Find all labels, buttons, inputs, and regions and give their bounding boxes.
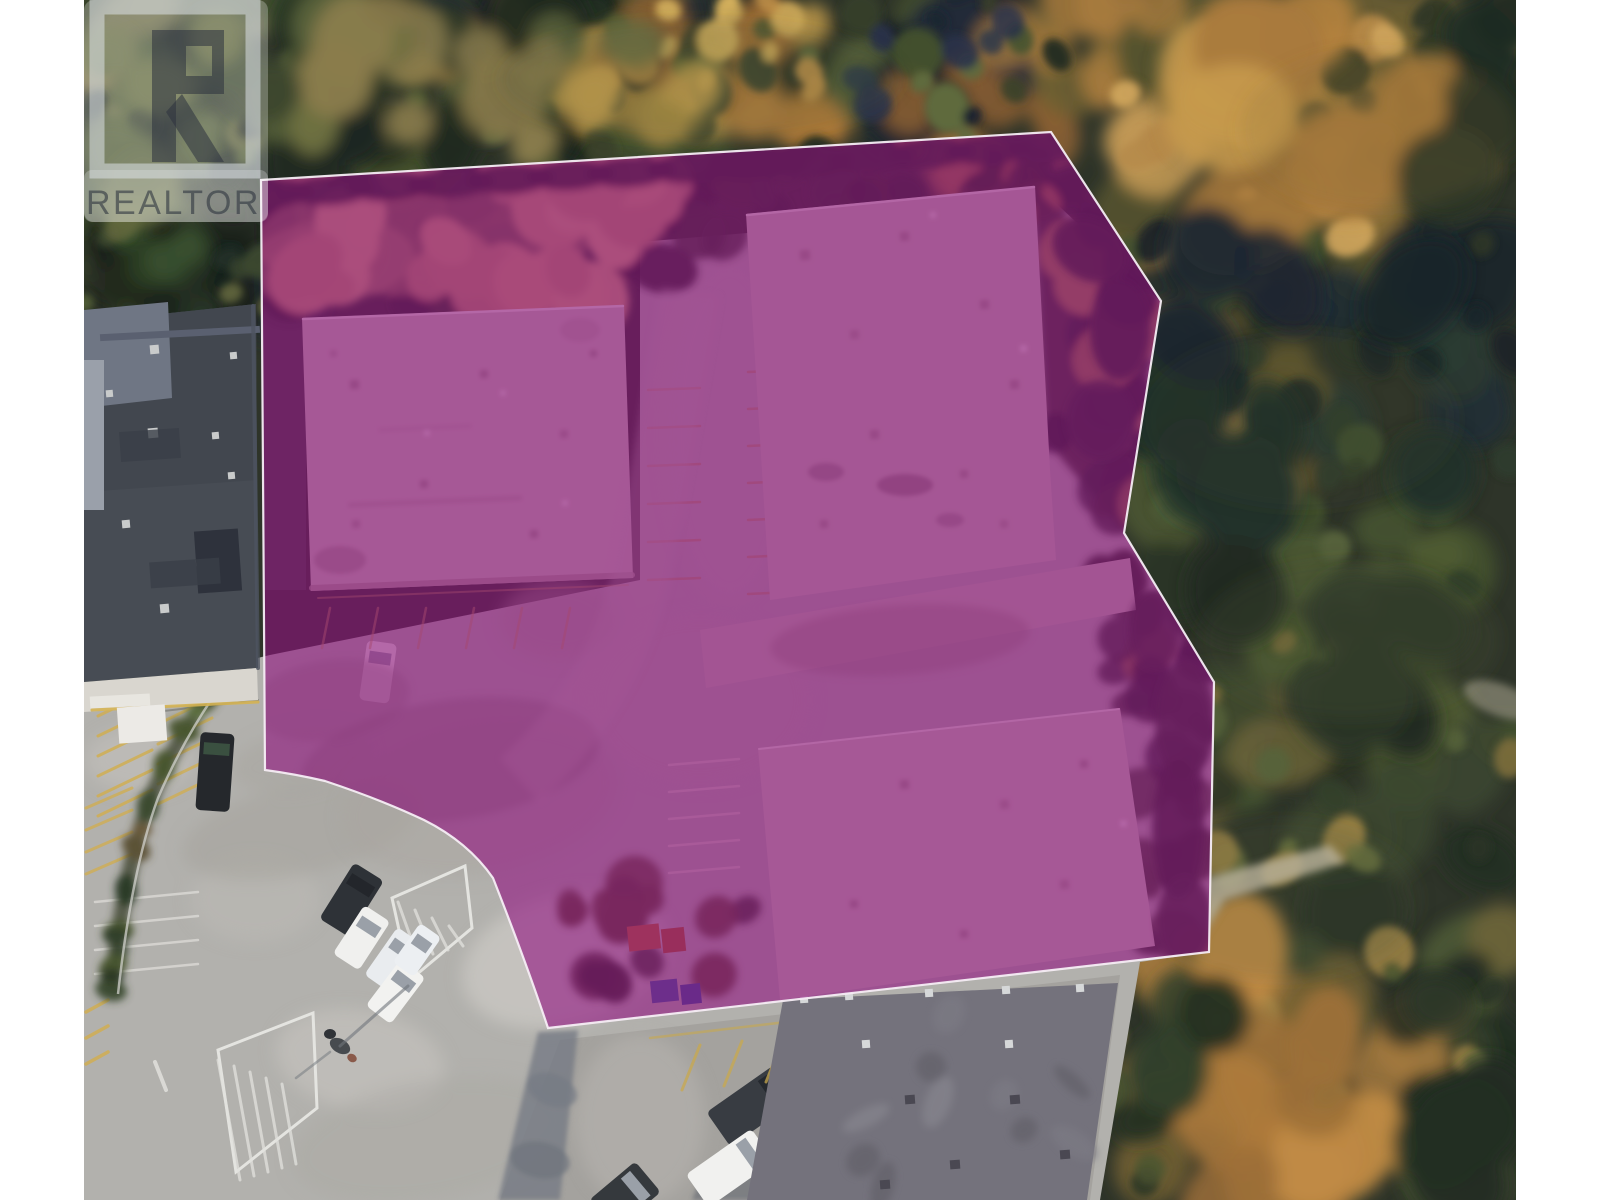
svg-text:REALTOR: REALTOR — [86, 184, 261, 222]
